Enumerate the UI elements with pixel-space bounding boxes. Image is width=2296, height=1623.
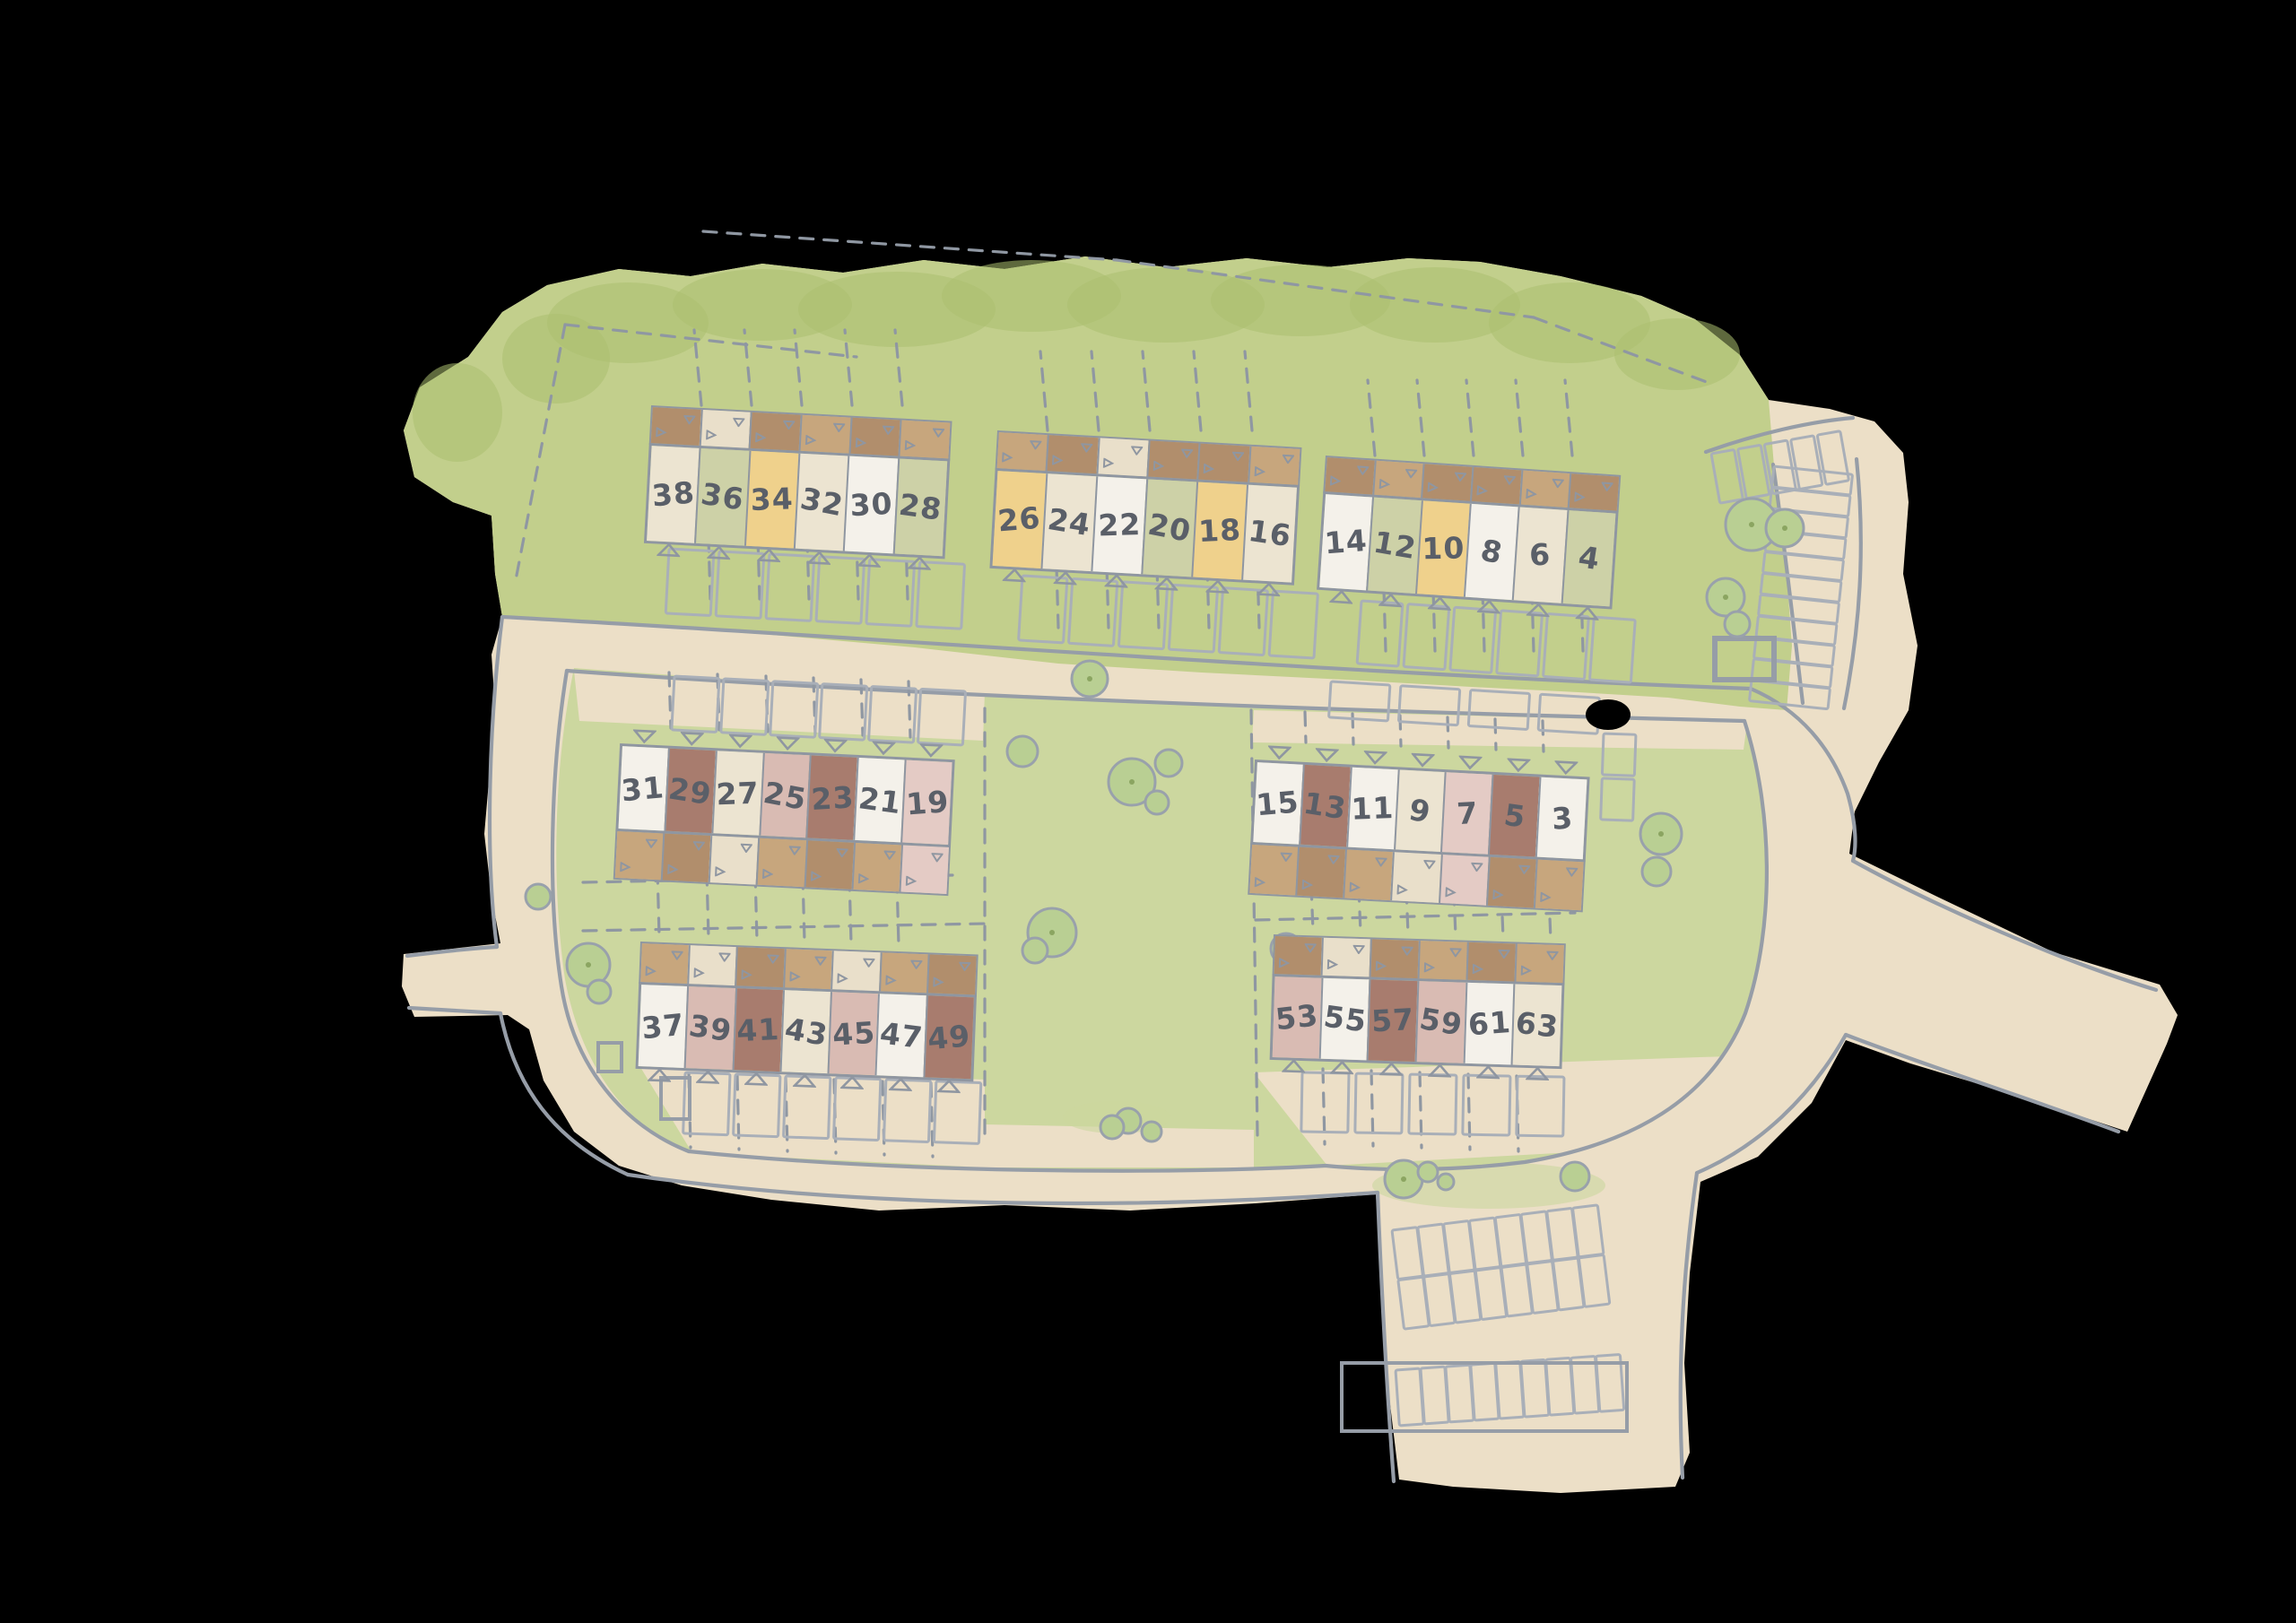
plot-number: 10 bbox=[1422, 530, 1465, 566]
garden-cell bbox=[927, 954, 977, 994]
garden-cell bbox=[851, 842, 901, 891]
entrance-marker-slot bbox=[1398, 751, 1447, 770]
garden-marker-icon bbox=[1503, 474, 1516, 485]
garden-marker-icon bbox=[1471, 861, 1483, 872]
front-door-marker-icon bbox=[1155, 576, 1179, 591]
terrace-38-28: 383634323028 bbox=[643, 405, 952, 573]
plot-number: 55 bbox=[1321, 998, 1369, 1038]
plot-26: 26 bbox=[993, 471, 1047, 568]
garden-marker-icon bbox=[1349, 881, 1361, 892]
front-door-marker-icon bbox=[744, 1071, 769, 1086]
garden-marker-icon bbox=[741, 969, 752, 979]
garden-cell bbox=[1568, 473, 1619, 511]
plot-number: 36 bbox=[699, 476, 746, 517]
garden-marker-icon bbox=[1203, 464, 1215, 474]
plot-number: 11 bbox=[1351, 790, 1395, 827]
garden-cell bbox=[879, 952, 928, 993]
garden-cell bbox=[709, 836, 759, 885]
entrance-marker-slot bbox=[1365, 591, 1415, 611]
plot-number: 30 bbox=[849, 486, 894, 523]
terrace-26-16: 262422201816 bbox=[989, 430, 1302, 599]
plot-number: 31 bbox=[621, 769, 666, 808]
garden-marker-icon bbox=[692, 968, 704, 977]
front-door-marker-icon bbox=[1003, 567, 1027, 582]
garden-cell bbox=[749, 412, 801, 451]
plot-number: 12 bbox=[1370, 525, 1419, 567]
front-door-marker-icon bbox=[680, 731, 704, 746]
garden-cell bbox=[1486, 856, 1536, 907]
garden-marker-icon bbox=[884, 975, 896, 985]
entrance-marker-slot bbox=[744, 546, 795, 565]
front-door-marker-icon bbox=[1205, 578, 1230, 594]
plot-9: 9 bbox=[1394, 769, 1445, 852]
garden-cell bbox=[640, 943, 688, 984]
entrance-marker-slot bbox=[643, 541, 694, 560]
plot-number: 9 bbox=[1406, 792, 1434, 830]
plot-21: 21 bbox=[854, 758, 905, 842]
plot-59: 59 bbox=[1415, 981, 1465, 1063]
plot-number: 61 bbox=[1466, 1004, 1512, 1042]
plot-19: 19 bbox=[900, 760, 952, 845]
garden-cell bbox=[783, 949, 832, 989]
garden-marker-icon bbox=[1566, 866, 1578, 877]
garden-cell bbox=[1046, 435, 1098, 473]
entrance-marker-slot bbox=[1351, 750, 1399, 768]
garden-marker-icon bbox=[705, 430, 717, 440]
garden-marker-icon bbox=[810, 871, 822, 881]
garden-marker-icon bbox=[959, 961, 970, 971]
entrance-marker-slot bbox=[1464, 1063, 1513, 1081]
garden-marker-icon bbox=[933, 427, 945, 438]
front-door-marker-icon bbox=[1329, 588, 1353, 604]
entrance-marker-slot bbox=[1561, 603, 1612, 623]
garden-marker-icon bbox=[1030, 439, 1042, 450]
garden-marker-icon bbox=[1356, 464, 1369, 475]
plot-number: 22 bbox=[1098, 507, 1142, 542]
front-door-marker-icon bbox=[648, 1067, 672, 1082]
plot-number: 34 bbox=[750, 481, 794, 517]
garden-marker-icon bbox=[911, 959, 923, 969]
plot-37: 37 bbox=[639, 985, 688, 1068]
terrace-37-49-houses: 37394143454749 bbox=[636, 981, 977, 1081]
garden-marker-icon bbox=[1427, 482, 1439, 493]
front-door-marker-icon bbox=[807, 550, 831, 565]
plot-12: 12 bbox=[1366, 497, 1421, 593]
plot-number: 37 bbox=[639, 1006, 686, 1046]
entrance-marker-slot bbox=[989, 566, 1041, 585]
front-door-marker-icon bbox=[1477, 1064, 1500, 1080]
garden-marker-icon bbox=[863, 958, 874, 968]
garden-marker-icon bbox=[1475, 485, 1488, 496]
garden-cell bbox=[1248, 447, 1300, 485]
garden-marker-icon bbox=[1574, 491, 1587, 502]
front-door-marker-icon bbox=[908, 555, 932, 570]
front-door-marker-icon bbox=[728, 733, 752, 749]
garden-marker-icon bbox=[741, 842, 753, 853]
garden-marker-icon bbox=[1181, 448, 1194, 459]
plot-number: 18 bbox=[1197, 512, 1242, 549]
garden-cell bbox=[1343, 849, 1393, 900]
garden-marker-icon bbox=[804, 435, 817, 446]
plot-34: 34 bbox=[744, 450, 799, 548]
garden-marker-icon bbox=[1301, 879, 1314, 890]
garden-cell bbox=[1519, 470, 1570, 508]
entrance-marker-slot bbox=[1039, 568, 1091, 587]
plot-number: 6 bbox=[1529, 537, 1552, 573]
terrace-14-4: 141210864 bbox=[1316, 456, 1621, 623]
garden-cell bbox=[699, 410, 751, 448]
plot-45: 45 bbox=[828, 992, 879, 1075]
plot-number: 3 bbox=[1550, 800, 1574, 837]
garden-cell bbox=[831, 950, 880, 991]
front-door-marker-icon bbox=[792, 1072, 816, 1088]
garden-marker-icon bbox=[1454, 472, 1466, 482]
plot-47: 47 bbox=[875, 994, 926, 1077]
plot-23: 23 bbox=[806, 755, 857, 839]
front-door-marker-icon bbox=[872, 741, 896, 756]
entrance-marker-slot bbox=[1141, 575, 1193, 594]
front-door-marker-icon bbox=[823, 738, 848, 753]
terrace-26-16-houses: 262422201816 bbox=[989, 467, 1300, 585]
plot-number: 38 bbox=[650, 474, 696, 513]
terrace-31-19: 31292725232119 bbox=[613, 728, 956, 896]
garden-cell bbox=[1325, 457, 1374, 494]
garden-marker-icon bbox=[1375, 961, 1387, 971]
garden-marker-icon bbox=[933, 977, 944, 987]
entrance-marker-slot bbox=[1414, 594, 1465, 613]
plot-number: 45 bbox=[831, 1014, 876, 1052]
garden-marker-icon bbox=[645, 966, 657, 976]
garden-marker-icon bbox=[1601, 481, 1613, 491]
garden-marker-icon bbox=[783, 420, 796, 430]
plot-31: 31 bbox=[619, 746, 668, 830]
entrance-marker-slot bbox=[1255, 744, 1303, 763]
plot-number: 59 bbox=[1417, 1001, 1465, 1043]
plot-number: 47 bbox=[878, 1015, 925, 1055]
plot-3: 3 bbox=[1535, 777, 1587, 860]
plot-24: 24 bbox=[1041, 473, 1097, 571]
front-door-marker-icon bbox=[889, 1076, 913, 1091]
plot-number: 53 bbox=[1274, 997, 1320, 1037]
garden-marker-icon bbox=[1401, 945, 1413, 955]
garden-cell bbox=[848, 418, 900, 456]
garden-marker-icon bbox=[1051, 455, 1064, 465]
garden-marker-icon bbox=[1152, 461, 1165, 472]
garden-cell bbox=[1439, 854, 1489, 905]
plot-number: 28 bbox=[897, 487, 944, 527]
garden-marker-icon bbox=[1552, 478, 1565, 489]
garden-marker-icon bbox=[683, 414, 696, 425]
front-door-marker-icon bbox=[1282, 1058, 1305, 1073]
garden-marker-icon bbox=[1472, 964, 1483, 974]
garden-marker-icon bbox=[1546, 950, 1558, 960]
entrance-marker-slot bbox=[667, 731, 716, 750]
front-door-marker-icon bbox=[1526, 1065, 1549, 1081]
front-door-marker-icon bbox=[776, 735, 800, 751]
garden-marker-icon bbox=[1498, 949, 1509, 959]
garden-cell bbox=[615, 830, 664, 879]
garden-marker-icon bbox=[1254, 877, 1266, 888]
plot-number: 43 bbox=[782, 1011, 831, 1053]
front-door-marker-icon bbox=[1267, 745, 1291, 760]
plot-53: 53 bbox=[1273, 976, 1321, 1059]
garden-marker-icon bbox=[788, 845, 801, 855]
front-door-marker-icon bbox=[632, 729, 657, 744]
plot-29: 29 bbox=[664, 749, 715, 833]
garden-marker-icon bbox=[1278, 958, 1290, 968]
garden-cell bbox=[899, 421, 951, 459]
garden-marker-icon bbox=[1231, 451, 1244, 462]
garden-cell bbox=[1249, 844, 1298, 895]
garden-marker-icon bbox=[1525, 489, 1537, 499]
plot-number: 24 bbox=[1046, 501, 1094, 542]
garden-marker-icon bbox=[1253, 466, 1265, 477]
plot-number: 15 bbox=[1255, 784, 1300, 822]
plot-32: 32 bbox=[794, 453, 848, 551]
front-door-marker-icon bbox=[1363, 750, 1387, 765]
front-door-marker-icon bbox=[696, 1069, 720, 1084]
garden-marker-icon bbox=[1492, 890, 1504, 900]
front-door-marker-icon bbox=[1526, 602, 1550, 618]
plot-6: 6 bbox=[1512, 507, 1567, 603]
plot-number: 27 bbox=[716, 775, 760, 811]
front-door-marker-icon bbox=[1575, 604, 1599, 621]
entrance-marker-slot bbox=[693, 543, 744, 562]
garden-marker-icon bbox=[931, 852, 944, 863]
garden-marker-icon bbox=[855, 438, 867, 448]
garden-marker-icon bbox=[904, 440, 917, 451]
garden-marker-icon bbox=[836, 846, 848, 857]
garden-marker-icon bbox=[1329, 475, 1342, 486]
plot-11: 11 bbox=[1346, 768, 1397, 850]
plot-27: 27 bbox=[711, 751, 762, 835]
front-door-marker-icon bbox=[1458, 755, 1483, 770]
entrance-marker-slot bbox=[1513, 1065, 1562, 1083]
garden-marker-icon bbox=[1282, 454, 1294, 464]
plot-25: 25 bbox=[759, 753, 810, 838]
plot-number: 13 bbox=[1301, 785, 1349, 827]
garden-cell bbox=[661, 833, 711, 882]
entrance-marker-slot bbox=[876, 1076, 926, 1094]
entrance-marker-slot bbox=[716, 733, 764, 751]
garden-cell bbox=[1146, 440, 1198, 479]
plot-number: 63 bbox=[1514, 1005, 1561, 1045]
entrance-marker-slot bbox=[683, 1068, 733, 1086]
garden-marker-icon bbox=[1102, 458, 1115, 469]
front-door-marker-icon bbox=[919, 742, 944, 758]
garden-cell bbox=[756, 838, 806, 887]
front-door-marker-icon bbox=[1411, 752, 1435, 768]
plot-number: 25 bbox=[761, 774, 809, 816]
plot-55: 55 bbox=[1318, 977, 1369, 1060]
garden-marker-icon bbox=[1327, 854, 1340, 864]
terrace-37-49: 37394143454749 bbox=[635, 942, 978, 1096]
garden-marker-icon bbox=[1131, 445, 1144, 456]
entrance-marker-slot bbox=[828, 1074, 877, 1092]
entrance-marker-slot bbox=[1494, 757, 1543, 776]
front-door-marker-icon bbox=[1104, 572, 1128, 587]
garden-marker-icon bbox=[837, 973, 848, 983]
entrance-marker-slot bbox=[763, 735, 812, 754]
garden-cell bbox=[997, 432, 1048, 471]
entrance-marker-slot bbox=[1446, 754, 1494, 773]
front-door-marker-icon bbox=[937, 1078, 961, 1093]
garden-marker-icon bbox=[1304, 942, 1316, 952]
garden-cell bbox=[1096, 438, 1148, 476]
plot-number: 7 bbox=[1456, 795, 1479, 831]
plot-63: 63 bbox=[1511, 984, 1561, 1066]
plot-number: 26 bbox=[996, 500, 1042, 539]
entrance-marker-slot bbox=[1464, 597, 1514, 617]
plot-10: 10 bbox=[1415, 500, 1470, 596]
garden-cell bbox=[1514, 943, 1563, 983]
entrance-marker-slot bbox=[620, 728, 668, 747]
plot-41: 41 bbox=[732, 988, 783, 1072]
garden-marker-icon bbox=[714, 866, 726, 877]
garden-cell bbox=[1295, 846, 1345, 898]
plot-number: 4 bbox=[1576, 539, 1603, 577]
plot-8: 8 bbox=[1464, 503, 1518, 599]
plot-number: 49 bbox=[926, 1018, 972, 1056]
entrance-marker-slot bbox=[1367, 1061, 1416, 1079]
garden-marker-icon bbox=[857, 873, 870, 884]
garden-marker-icon bbox=[1352, 944, 1364, 954]
garden-marker-icon bbox=[1405, 468, 1418, 479]
plot-20: 20 bbox=[1141, 479, 1196, 577]
plot-14: 14 bbox=[1319, 494, 1372, 590]
garden-cell bbox=[1274, 936, 1322, 976]
entrance-marker-slot bbox=[812, 737, 860, 756]
garden-marker-icon bbox=[733, 417, 745, 428]
garden-marker-icon bbox=[761, 868, 774, 879]
garden-marker-icon bbox=[883, 425, 895, 436]
plot-61: 61 bbox=[1463, 982, 1513, 1064]
garden-marker-icon bbox=[754, 432, 767, 443]
front-door-marker-icon bbox=[757, 547, 781, 562]
plot-number: 16 bbox=[1247, 513, 1294, 553]
entrance-marker-slot bbox=[844, 551, 895, 570]
garden-marker-icon bbox=[905, 875, 918, 886]
plot-38: 38 bbox=[647, 446, 700, 543]
front-door-marker-icon bbox=[1257, 581, 1281, 596]
garden-marker-icon bbox=[1378, 479, 1390, 490]
front-door-marker-icon bbox=[657, 542, 681, 557]
garden-cell bbox=[899, 845, 949, 894]
entrance-marker-slot bbox=[1192, 577, 1244, 596]
front-door-marker-icon bbox=[1378, 592, 1403, 608]
terrace-38-28-houses: 383634323028 bbox=[644, 442, 950, 558]
entrance-marker-slot bbox=[1318, 1059, 1367, 1077]
garden-cell bbox=[1418, 941, 1467, 980]
garden-marker-icon bbox=[693, 840, 706, 851]
garden-marker-icon bbox=[655, 427, 667, 438]
plot-43: 43 bbox=[779, 990, 831, 1073]
entrance-marker-slot bbox=[1242, 580, 1294, 599]
garden-marker-icon bbox=[1520, 966, 1532, 976]
plot-number: 5 bbox=[1501, 797, 1527, 835]
plot-number: 8 bbox=[1478, 532, 1506, 570]
plot-39: 39 bbox=[684, 986, 735, 1070]
plot-49: 49 bbox=[923, 995, 974, 1079]
front-door-marker-icon bbox=[1315, 748, 1339, 763]
garden-marker-icon bbox=[666, 864, 679, 874]
plot-number: 19 bbox=[905, 784, 951, 821]
garden-cell bbox=[1470, 467, 1521, 505]
front-door-marker-icon bbox=[1507, 758, 1531, 773]
garden-marker-icon bbox=[619, 862, 631, 872]
front-door-marker-icon bbox=[707, 544, 731, 560]
entrance-marker-slot bbox=[1415, 1063, 1465, 1081]
plot-4: 4 bbox=[1561, 509, 1615, 605]
plot-7: 7 bbox=[1440, 772, 1492, 855]
garden-marker-icon bbox=[1080, 442, 1092, 453]
garden-cell bbox=[1421, 464, 1472, 501]
garden-marker-icon bbox=[1326, 959, 1338, 969]
plot-number: 29 bbox=[666, 770, 714, 811]
garden-marker-icon bbox=[1423, 858, 1436, 869]
garden-marker-icon bbox=[788, 971, 800, 981]
plot-28: 28 bbox=[892, 458, 947, 556]
garden-marker-icon bbox=[718, 951, 730, 961]
plot-number: 20 bbox=[1145, 507, 1195, 550]
garden-cell bbox=[1372, 461, 1423, 499]
front-door-marker-icon bbox=[840, 1074, 865, 1089]
terrace-15-3: 1513119753 bbox=[1248, 744, 1590, 912]
entrance-marker-slot bbox=[1091, 572, 1143, 591]
plot-number: 21 bbox=[857, 780, 904, 820]
plot-15: 15 bbox=[1253, 762, 1302, 845]
entrance-marker-slot bbox=[794, 549, 845, 568]
garden-marker-icon bbox=[1539, 891, 1552, 902]
plot-36: 36 bbox=[694, 447, 749, 545]
entrance-marker-slot bbox=[1542, 759, 1590, 778]
terrace-rows-layer: 3836343230282624222018161412108643129272… bbox=[0, 0, 2296, 1623]
plot-13: 13 bbox=[1299, 765, 1350, 847]
garden-marker-icon bbox=[1001, 452, 1013, 463]
garden-cell bbox=[1197, 444, 1249, 482]
entrance-marker-slot bbox=[1269, 1057, 1318, 1075]
front-door-marker-icon bbox=[1554, 759, 1578, 775]
garden-cell bbox=[804, 840, 854, 890]
plot-number: 32 bbox=[797, 481, 846, 523]
plot-number: 57 bbox=[1370, 1002, 1415, 1039]
garden-marker-icon bbox=[1280, 851, 1292, 862]
garden-cell bbox=[799, 415, 851, 454]
plot-number: 23 bbox=[810, 779, 855, 817]
front-door-marker-icon bbox=[1331, 1060, 1354, 1075]
garden-cell bbox=[651, 407, 701, 446]
entrance-marker-slot bbox=[732, 1071, 781, 1089]
garden-marker-icon bbox=[767, 953, 778, 963]
plot-number: 41 bbox=[736, 1011, 781, 1047]
garden-marker-icon bbox=[646, 838, 658, 848]
front-door-marker-icon bbox=[1428, 1063, 1451, 1078]
garden-cell bbox=[1534, 859, 1584, 910]
plot-number: 14 bbox=[1323, 523, 1369, 560]
entrance-marker-slot bbox=[894, 554, 945, 573]
garden-cell bbox=[735, 947, 784, 987]
front-door-marker-icon bbox=[1427, 595, 1451, 611]
garden-marker-icon bbox=[1396, 884, 1409, 895]
front-door-marker-icon bbox=[857, 552, 882, 568]
garden-marker-icon bbox=[1444, 887, 1457, 898]
plot-57: 57 bbox=[1367, 979, 1417, 1062]
garden-marker-icon bbox=[1423, 962, 1435, 972]
plot-30: 30 bbox=[843, 456, 898, 553]
plot-number: 39 bbox=[687, 1007, 735, 1047]
garden-marker-icon bbox=[1376, 856, 1388, 867]
garden-marker-icon bbox=[671, 950, 683, 959]
